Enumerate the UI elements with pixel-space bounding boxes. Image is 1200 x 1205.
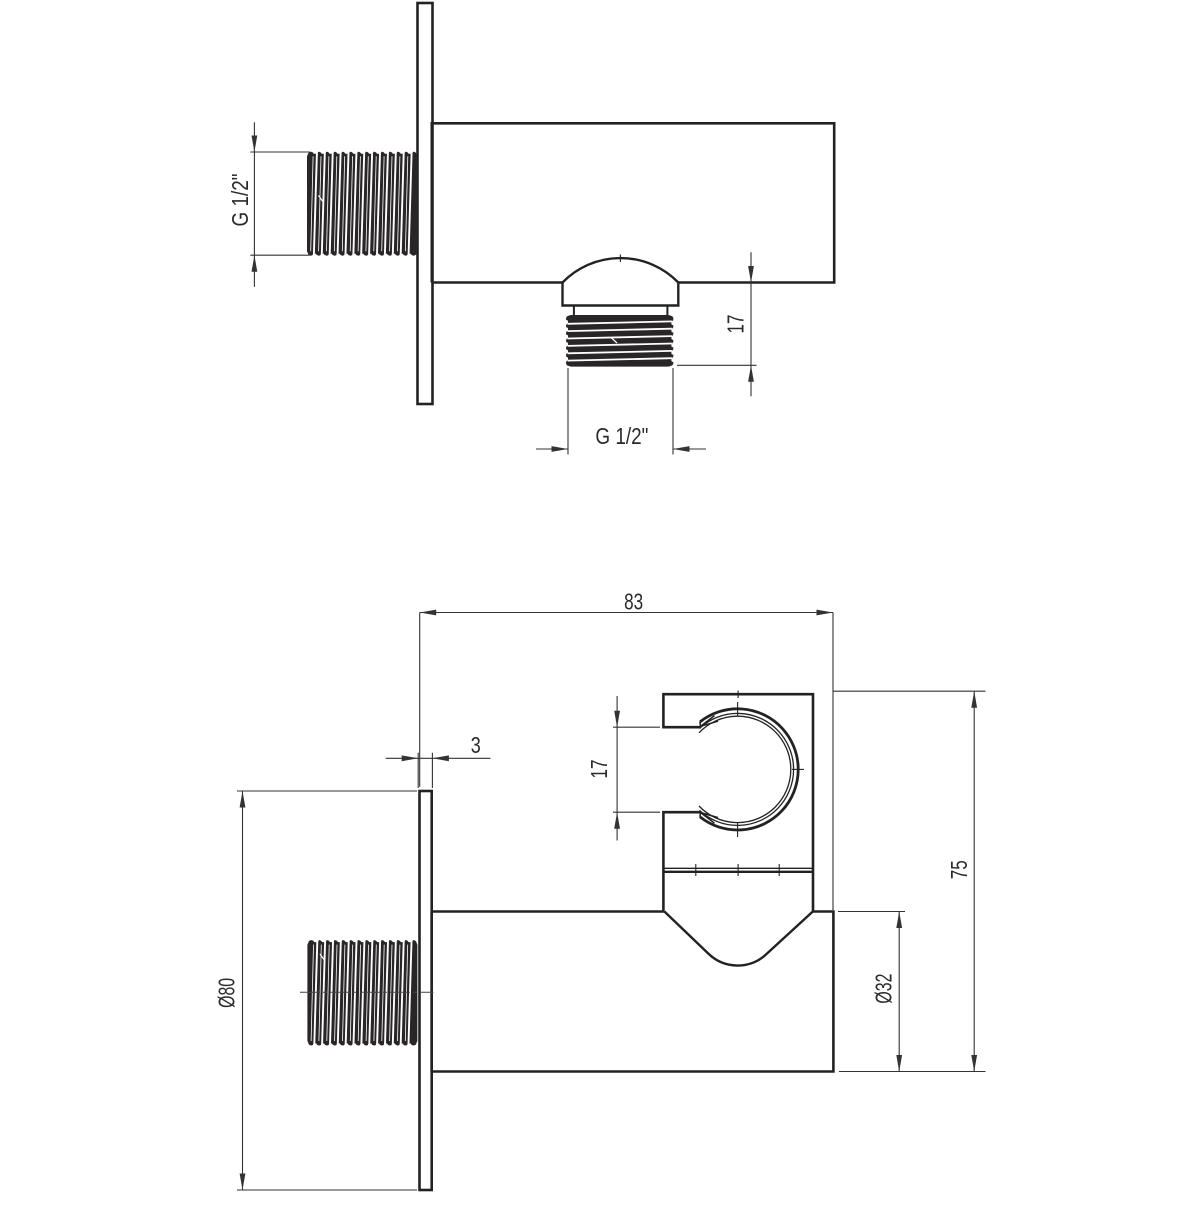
svg-text:Ø80: Ø80: [214, 978, 240, 1008]
svg-text:G 1/2": G 1/2": [595, 423, 648, 449]
svg-text:17: 17: [723, 315, 749, 334]
svg-text:Ø32: Ø32: [871, 974, 897, 1004]
svg-text:75: 75: [946, 860, 972, 879]
svg-text:17: 17: [586, 760, 612, 779]
svg-text:G 1/2": G 1/2": [227, 174, 253, 227]
svg-text:3: 3: [471, 732, 481, 758]
svg-text:83: 83: [624, 588, 643, 614]
